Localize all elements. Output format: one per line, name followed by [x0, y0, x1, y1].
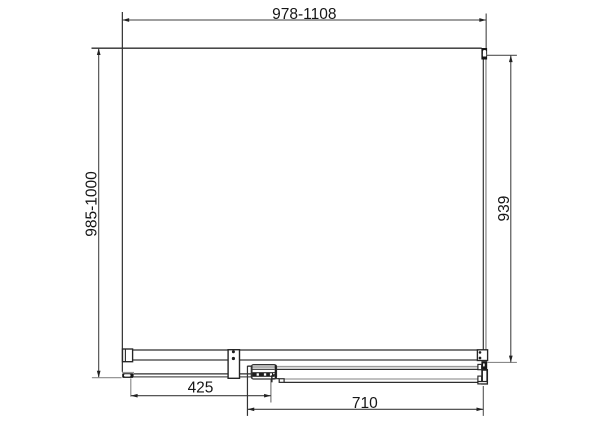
- svg-text:710: 710: [352, 395, 378, 412]
- svg-text:985-1000: 985-1000: [84, 171, 101, 237]
- svg-text:425: 425: [188, 379, 214, 396]
- svg-text:939: 939: [496, 196, 513, 222]
- svg-text:978-1108: 978-1108: [272, 6, 336, 23]
